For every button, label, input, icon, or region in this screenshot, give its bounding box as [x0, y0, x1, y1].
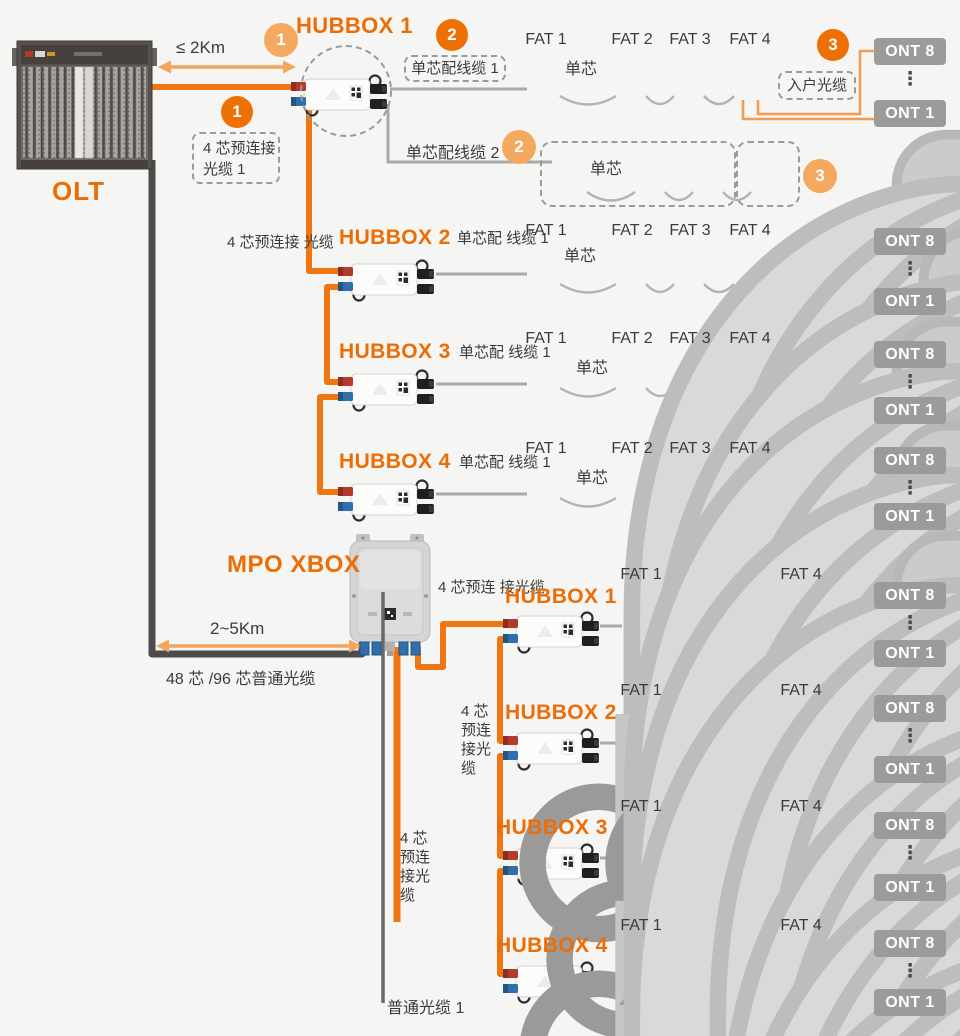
fat-label: FAT 4: [772, 917, 830, 935]
ont-ellipsis: ⋮: [874, 614, 946, 633]
fat-label: FAT 4: [721, 222, 779, 240]
ont-box: ONT 8: [874, 582, 946, 609]
drop-cable-label: 入户光缆: [787, 77, 847, 94]
fat-label: FAT 4: [772, 682, 830, 700]
single-core-label: 单芯: [576, 359, 608, 379]
feed-cable-label-stub: 4 芯 预连 接光 缆: [400, 829, 434, 905]
fat-label: FAT 2: [603, 31, 661, 49]
hubbox1-title: HUBBOX 1: [296, 13, 413, 39]
ont-box: ONT 1: [874, 756, 946, 783]
hubbox-device: [503, 845, 599, 885]
ont-ellipsis: ⋮: [874, 844, 946, 863]
ont-box: ONT 8: [874, 447, 946, 474]
ont-box: ONT 1: [874, 503, 946, 530]
fat-label: FAT 1: [612, 798, 670, 816]
ont-box: ONT 1: [874, 640, 946, 667]
fat-label: FAT 3: [661, 222, 719, 240]
ont-ellipsis: ⋮: [874, 479, 946, 498]
preconnect-cables-orange: [150, 87, 513, 974]
fat-label: FAT 1: [612, 682, 670, 700]
ont-box: ONT 8: [874, 812, 946, 839]
ont-ellipsis: ⋮: [874, 727, 946, 746]
feed-cable-1-dashed-box: 4 芯预连接 光缆 1: [192, 132, 280, 184]
hubbox2-title: HUBBOX 2: [339, 226, 451, 250]
mpo-xbox-title: MPO XBOX: [227, 551, 360, 579]
fat-label: FAT 3: [661, 31, 719, 49]
fat-label: FAT 4: [772, 566, 830, 584]
ont-box: ONT 1: [874, 989, 946, 1016]
ont-box: ONT 1: [874, 874, 946, 901]
badge-step-1-light: 1: [264, 23, 298, 57]
lower-hubbox3-title: HUBBOX 3: [496, 816, 608, 840]
ont-box: ONT 8: [874, 228, 946, 255]
fat-label: FAT 1: [517, 330, 575, 348]
fat-label: FAT 1: [517, 440, 575, 458]
ont-ellipsis: ⋮: [874, 373, 946, 392]
olt-label: OLT: [52, 176, 105, 207]
badge-step-2-light: 2: [502, 130, 536, 164]
ont-box: ONT 1: [874, 100, 946, 127]
fat-label: FAT 2: [603, 440, 661, 458]
badge-step-3: 3: [817, 29, 849, 61]
badge-step-1: 1: [221, 96, 253, 128]
fat-label: FAT 4: [721, 440, 779, 458]
fat-label: FAT 4: [721, 330, 779, 348]
lower-hubbox4-title: HUBBOX 4: [496, 934, 608, 958]
fat-label: FAT 1: [517, 222, 575, 240]
dist-cable-2-label: 单芯配线缆 2: [406, 144, 499, 164]
dist-cable-1-label: 单芯配线缆 1: [411, 60, 499, 77]
ont-box: ONT 1: [874, 288, 946, 315]
single-core-label: 单芯: [590, 160, 622, 180]
hubbox3-title: HUBBOX 3: [339, 340, 451, 364]
fat-label: FAT 3: [661, 440, 719, 458]
hubbox4-title: HUBBOX 4: [339, 450, 451, 474]
hubbox-device: [338, 481, 434, 521]
fat-label: FAT 3: [661, 330, 719, 348]
drop-cable-dashed-box: 入户光缆: [778, 71, 856, 100]
fat-group-dashed-box: [540, 141, 736, 207]
hubbox1-dashed-circle: [300, 45, 392, 137]
ont-box: ONT 1: [874, 397, 946, 424]
ont-box: ONT 8: [874, 695, 946, 722]
fat-label: FAT 2: [603, 330, 661, 348]
feed-cable-1-line1: 4 芯预连接: [203, 138, 278, 159]
ftth-topology-diagram: 4 芯预连接 光缆 1 单芯配线缆 1 入户光缆 1 1 2 2 3 3 OLT…: [0, 0, 960, 1036]
trunk-cable-label: 48 芯 /96 芯普通光缆: [166, 670, 315, 690]
fat-label: FAT 4: [772, 798, 830, 816]
fat-label: FAT 1: [612, 566, 670, 584]
fat-label: FAT 1: [517, 31, 575, 49]
lower-hubbox1-title: HUBBOX 1: [505, 585, 617, 609]
ont-box: ONT 8: [874, 341, 946, 368]
single-core-label: 单芯: [565, 60, 597, 80]
ont-ellipsis: ⋮: [874, 962, 946, 981]
dist-cable-1-dashed-box: 单芯配线缆 1: [404, 55, 506, 82]
fat-label: FAT 1: [612, 917, 670, 935]
single-core-label: 单芯: [564, 247, 596, 267]
ont-box: ONT 8: [874, 38, 946, 65]
ont-ellipsis: ⋮: [874, 260, 946, 279]
olt-device: [12, 41, 157, 169]
fat-group-dashed-box: [736, 141, 800, 207]
distance-label-2-5km: 2~5Km: [210, 619, 264, 639]
hubbox-device: [338, 371, 434, 411]
mpo-xbox-device: [350, 534, 430, 656]
fat-label: FAT 4: [721, 31, 779, 49]
lower-hubbox2-title: HUBBOX 2: [505, 701, 617, 725]
hubbox-device: [338, 261, 434, 301]
hubbox-device: [503, 730, 599, 770]
hubbox-device: [503, 613, 599, 653]
feed-cable-label-mid: 4 芯 预连 接光 缆: [461, 702, 495, 778]
badge-step-2: 2: [436, 19, 468, 51]
distance-label-2km: ≤ 2Km: [176, 38, 225, 58]
fat-label: FAT 2: [603, 222, 661, 240]
ont-ellipsis: ⋮: [874, 70, 946, 89]
badge-step-3-light: 3: [803, 159, 837, 193]
single-core-label: 单芯: [576, 469, 608, 489]
feed-cable-label-upper: 4 芯预连接 光缆: [227, 233, 334, 253]
ordinary-cable-label: 普通光缆 1: [387, 999, 464, 1019]
feed-cable-1-line2: 光缆 1: [203, 159, 278, 180]
ont-box: ONT 8: [874, 930, 946, 957]
